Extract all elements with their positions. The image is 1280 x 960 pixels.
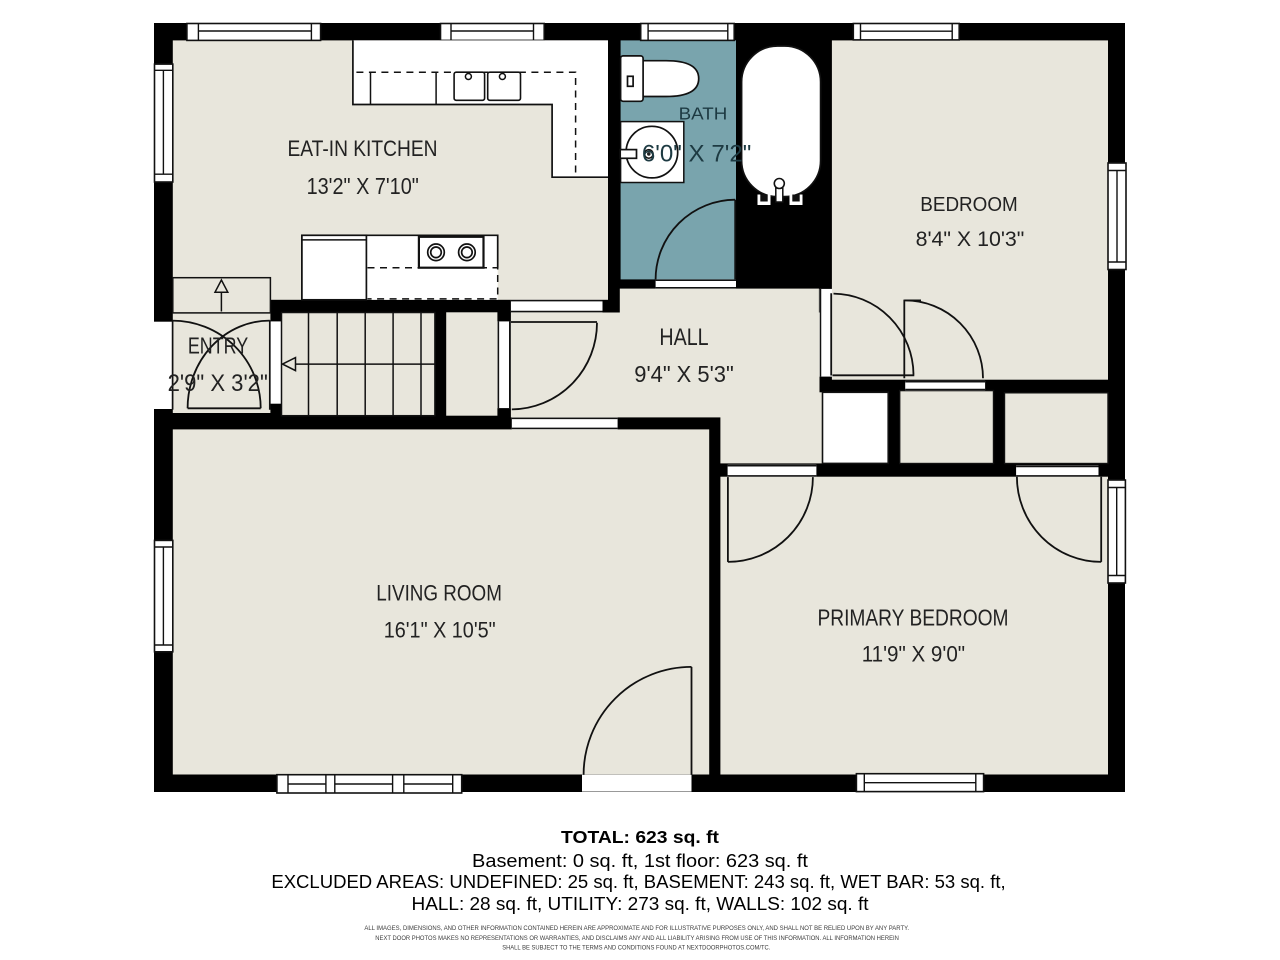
svg-text:8'4" X 10'3": 8'4" X 10'3" <box>916 227 1025 251</box>
svg-text:9'4" X 5'3": 9'4" X 5'3" <box>634 361 734 387</box>
svg-text:BEDROOM: BEDROOM <box>920 193 1017 216</box>
svg-text:LIVING ROOM: LIVING ROOM <box>376 581 502 606</box>
svg-text:2'9" X 3'2": 2'9" X 3'2" <box>168 370 268 397</box>
svg-text:BATH: BATH <box>679 104 728 124</box>
svg-text:EXCLUDED AREAS: UNDEFINED: 25: EXCLUDED AREAS: UNDEFINED: 25 sq. ft, BA… <box>271 871 1005 892</box>
svg-text:SHALL BE SUBJECT TO THE TERMS: SHALL BE SUBJECT TO THE TERMS AND CONDIT… <box>502 944 770 951</box>
svg-text:PRIMARY BEDROOM: PRIMARY BEDROOM <box>817 604 1008 630</box>
svg-text:11'9" X 9'0": 11'9" X 9'0" <box>862 641 965 666</box>
svg-text:TOTAL: 623 sq. ft: TOTAL: 623 sq. ft <box>561 827 719 847</box>
svg-text:6'0" X 7'2": 6'0" X 7'2" <box>642 140 751 167</box>
svg-text:NEXT DOOR PHOTOS MAKES NO REPR: NEXT DOOR PHOTOS MAKES NO REPRESENTATION… <box>375 935 899 942</box>
svg-text:ENTRY: ENTRY <box>188 333 248 359</box>
svg-text:Basement: 0 sq. ft, 1st floor:: Basement: 0 sq. ft, 1st floor: 623 sq. f… <box>472 850 809 871</box>
svg-text:ALL IMAGES, DIMENSIONS, AND OT: ALL IMAGES, DIMENSIONS, AND OTHER INFORM… <box>364 925 909 932</box>
svg-text:HALL: 28 sq. ft, UTILITY: 273: HALL: 28 sq. ft, UTILITY: 273 sq. ft, WA… <box>412 893 870 914</box>
svg-text:HALL: HALL <box>659 324 708 351</box>
svg-text:13'2" X 7'10": 13'2" X 7'10" <box>307 173 419 199</box>
svg-text:EAT-IN KITCHEN: EAT-IN KITCHEN <box>288 136 438 161</box>
svg-text:16'1" X 10'5": 16'1" X 10'5" <box>384 618 496 643</box>
